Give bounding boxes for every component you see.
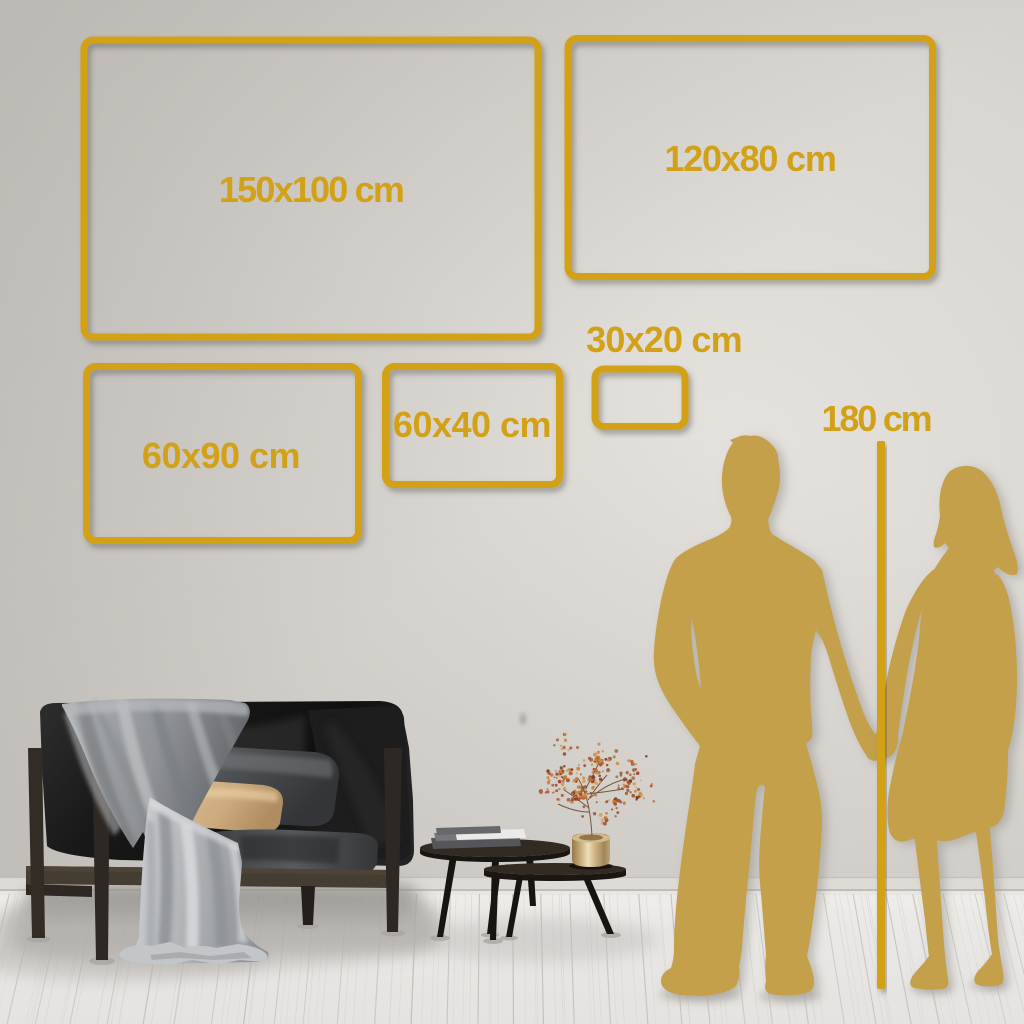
svg-text:150x100 cm: 150x100 cm: [219, 169, 403, 210]
svg-text:30x20 cm: 30x20 cm: [586, 319, 742, 360]
svg-text:180 cm: 180 cm: [822, 398, 931, 439]
svg-text:60x40 cm: 60x40 cm: [393, 404, 551, 445]
svg-text:60x90 cm: 60x90 cm: [142, 435, 300, 476]
svg-text:120x80 cm: 120x80 cm: [664, 138, 835, 179]
